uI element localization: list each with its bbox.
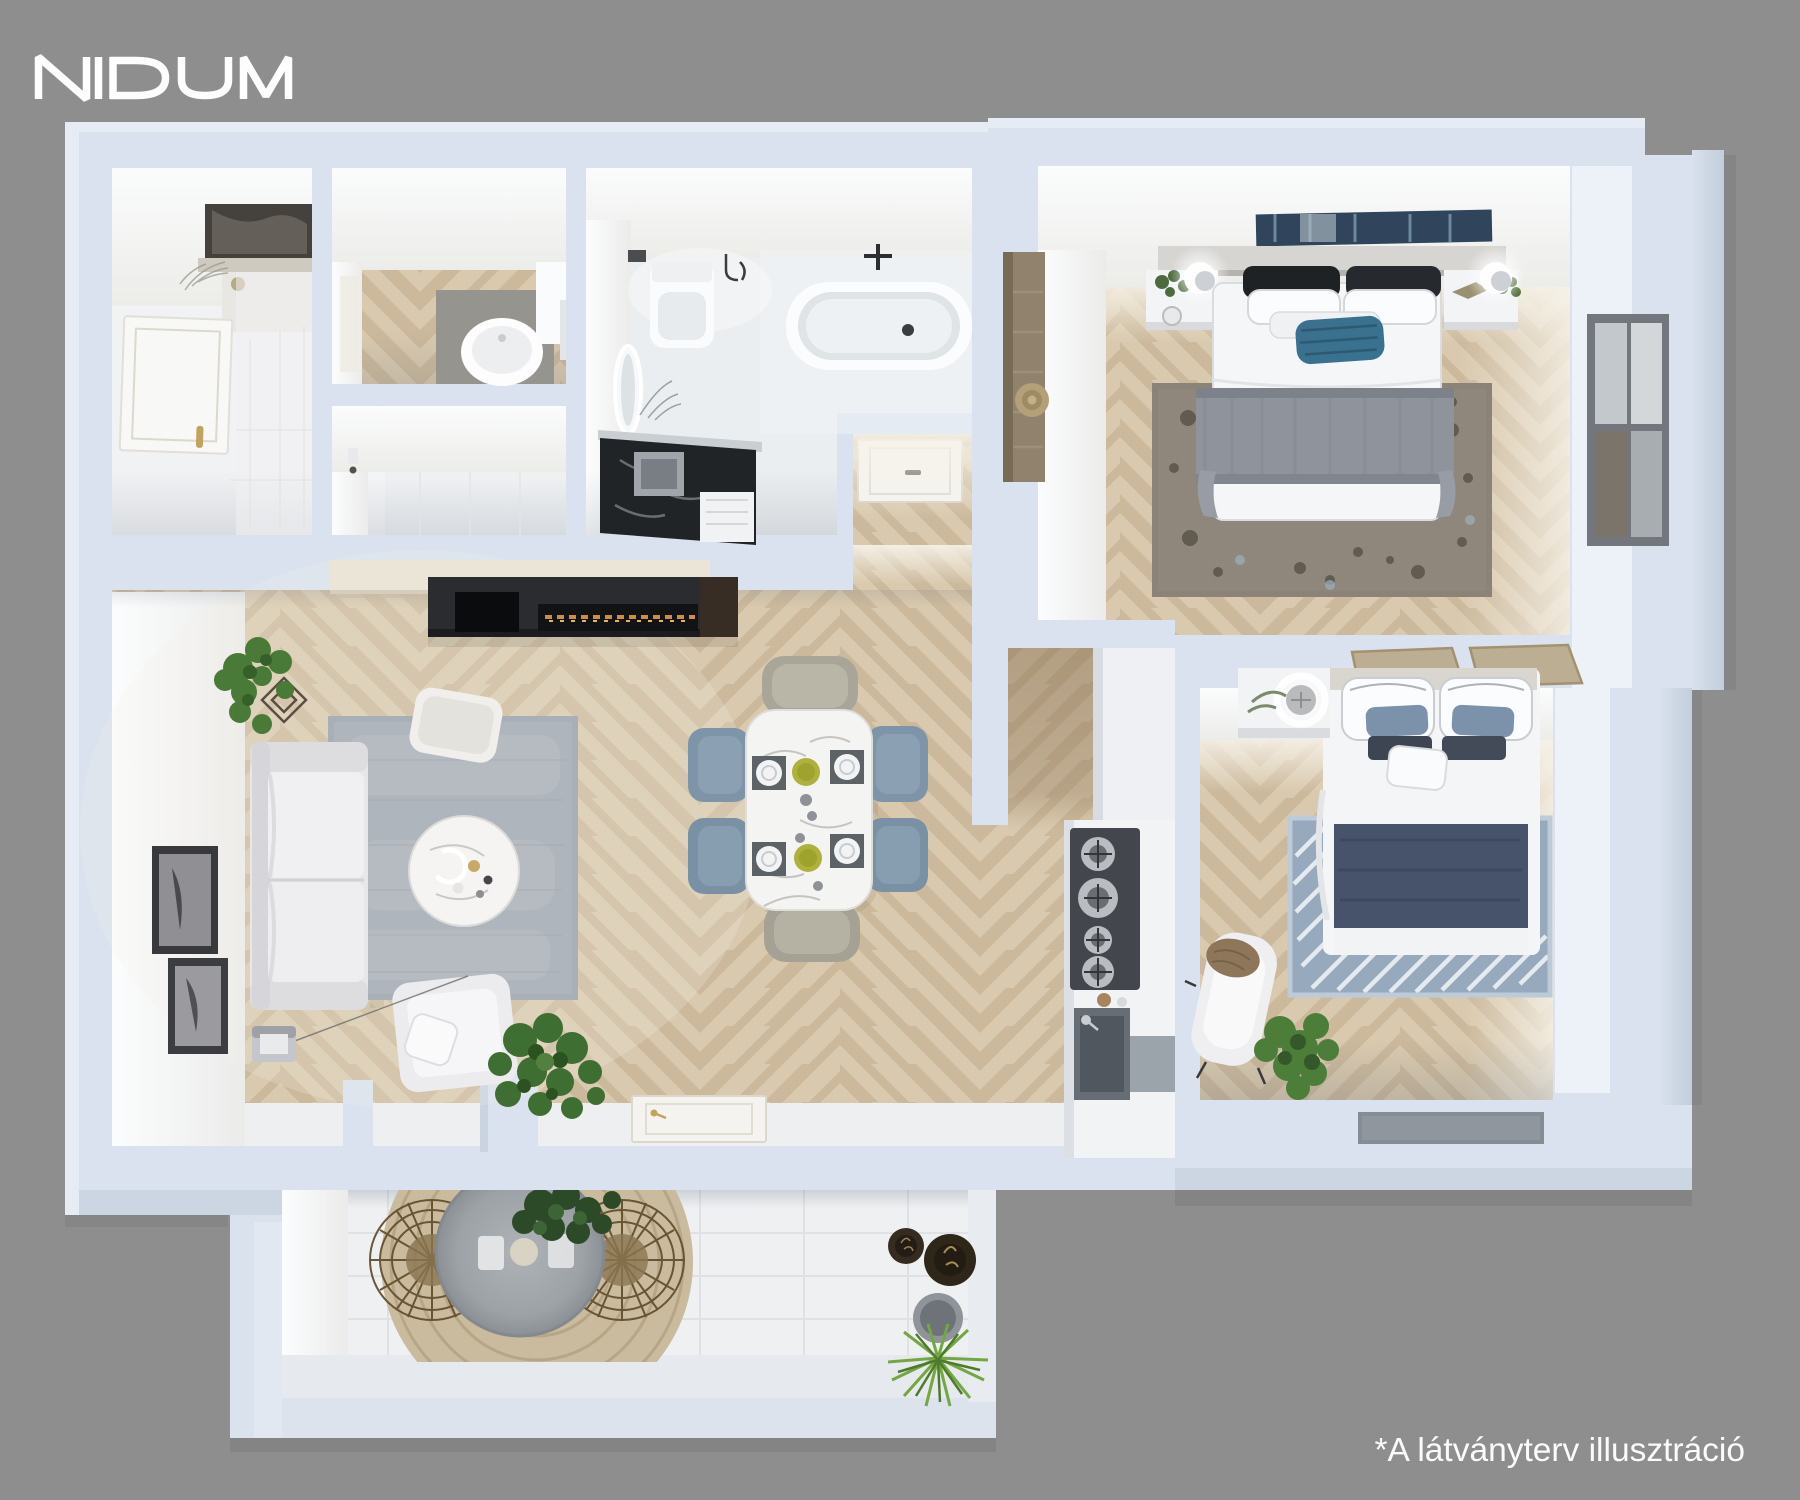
svg-text:*A látványterv illusztráció: *A látványterv illusztráció	[1374, 1432, 1745, 1469]
